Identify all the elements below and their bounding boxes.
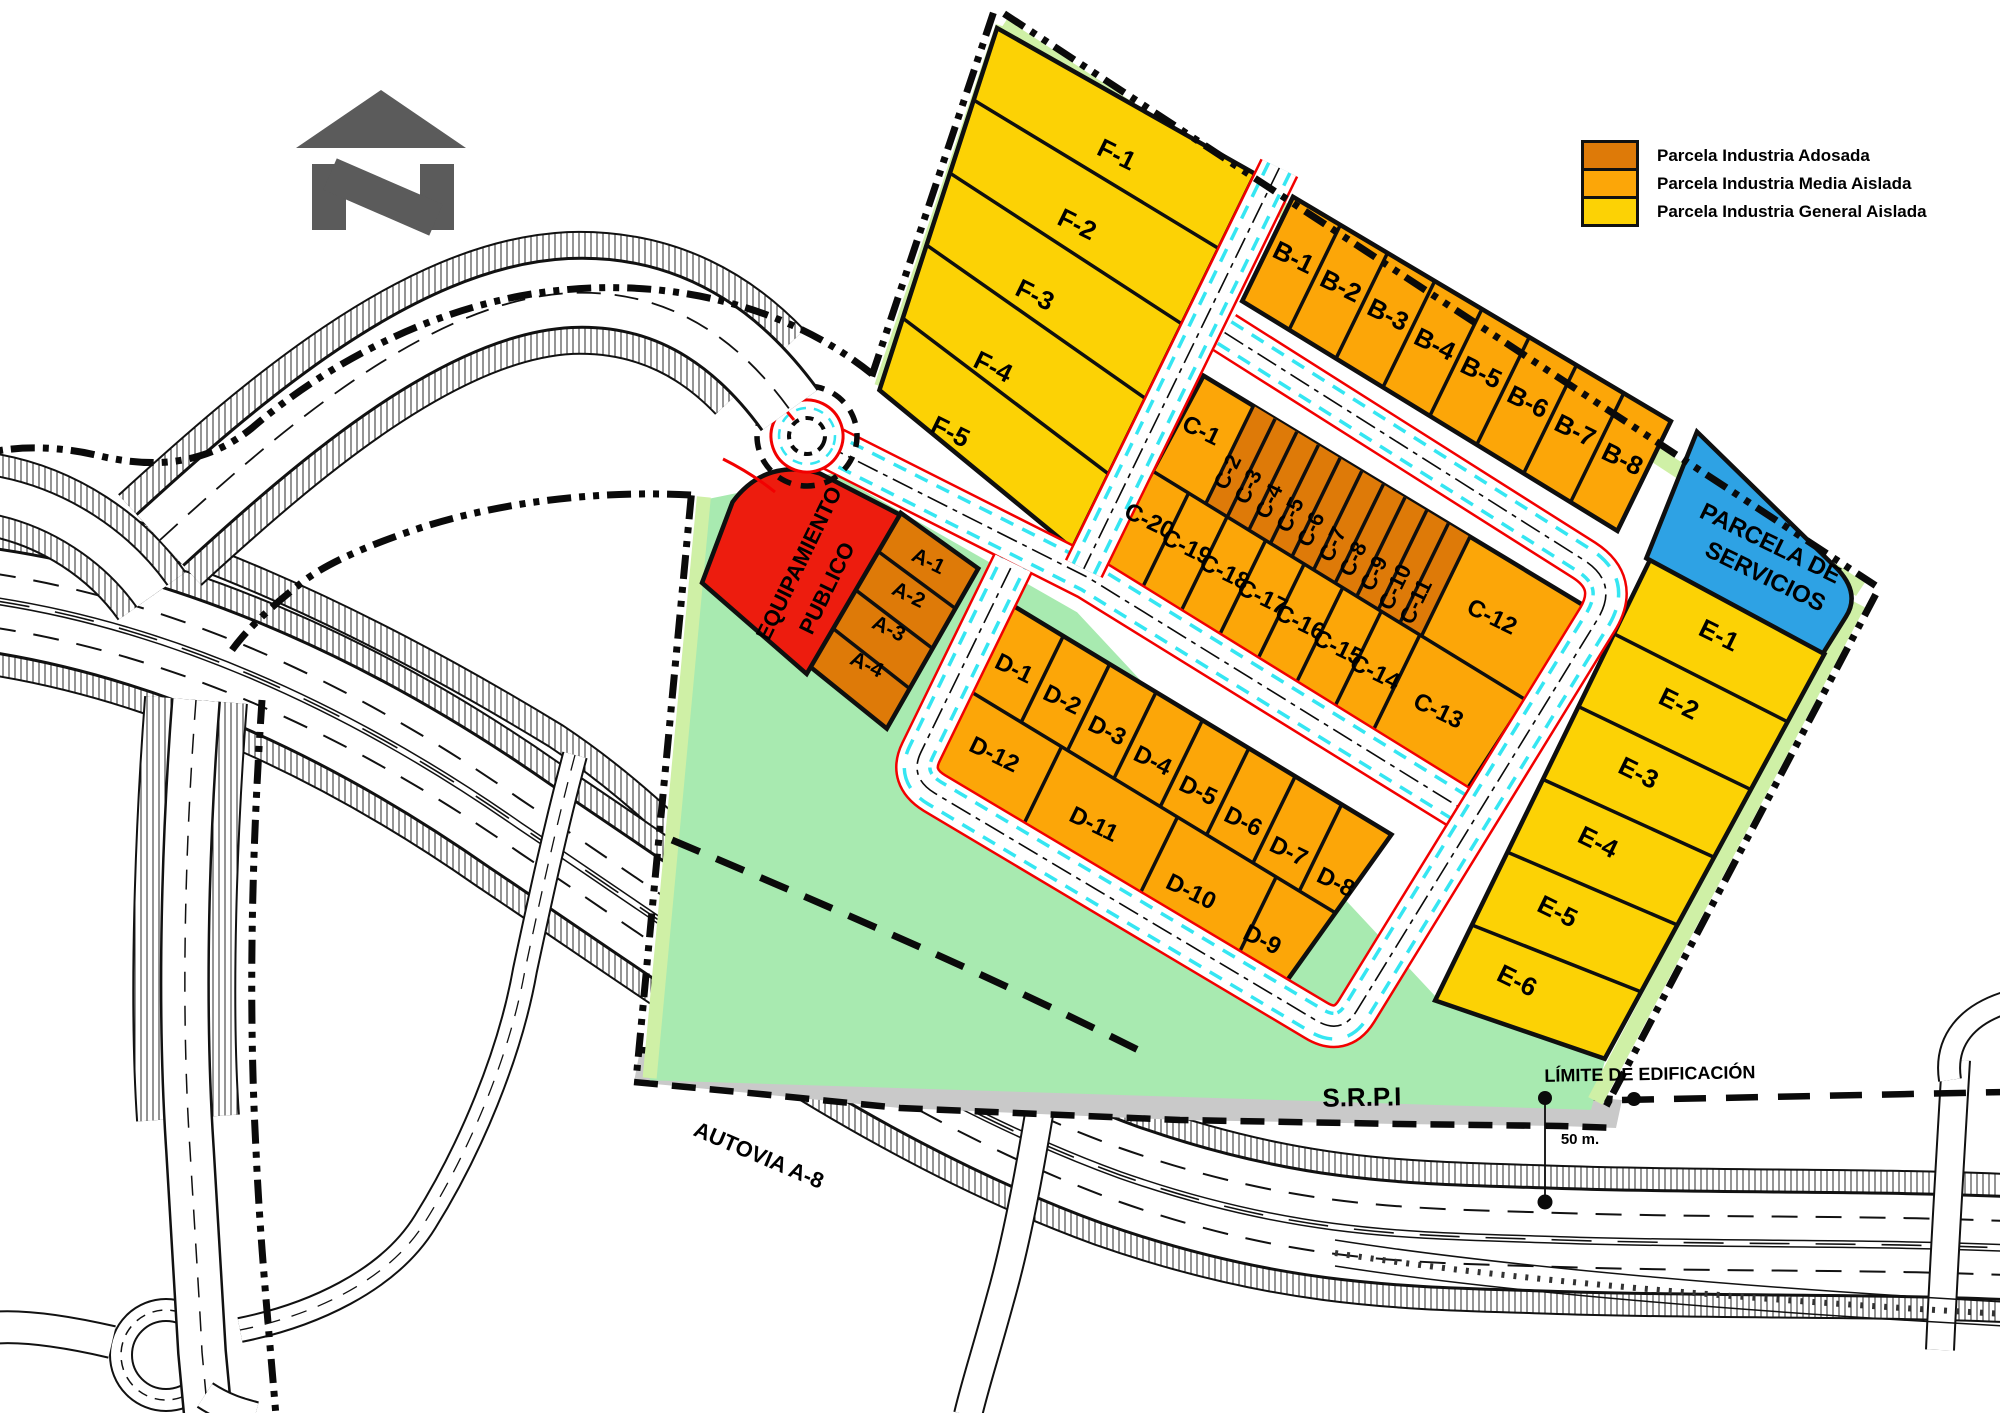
label-s.r.p.i: S.R.P.I bbox=[1322, 1081, 1402, 1112]
label-límite-de-edificación: LÍMITE DE EDIFICACIÓN bbox=[1544, 1061, 1755, 1086]
legend-swatch-general bbox=[1581, 196, 1639, 227]
entrance-corridor bbox=[160, 293, 790, 540]
label-50-m.: 50 m. bbox=[1561, 1131, 1599, 1148]
legend-row-adosada: Parcela Industria Adosada bbox=[1581, 140, 1927, 171]
fifty-m-bottom-dot bbox=[1538, 1195, 1553, 1210]
legend-label-general: Parcela Industria General Aislada bbox=[1657, 202, 1927, 222]
legend-label-media: Parcela Industria Media Aislada bbox=[1657, 174, 1911, 194]
plan-stage: F-1F-2F-3F-4F-5B-1B-2B-3B-4B-5B-6B-7B-8P… bbox=[0, 0, 2000, 1413]
north-arrow-icon bbox=[296, 90, 466, 230]
limite-node-dot bbox=[1627, 1092, 1641, 1106]
legend-label-adosada: Parcela Industria Adosada bbox=[1657, 146, 1870, 166]
legend-row-general: Parcela Industria General Aislada bbox=[1581, 196, 1927, 227]
legend: Parcela Industria Adosada Parcela Indust… bbox=[1581, 140, 1927, 227]
legend-swatch-adosada bbox=[1581, 140, 1639, 171]
label-autovia-a-8: AUTOVIA A-8 bbox=[690, 1117, 827, 1194]
legend-swatch-media bbox=[1581, 168, 1639, 199]
south-road bbox=[0, 700, 255, 1413]
legend-row-media: Parcela Industria Media Aislada bbox=[1581, 168, 1927, 199]
